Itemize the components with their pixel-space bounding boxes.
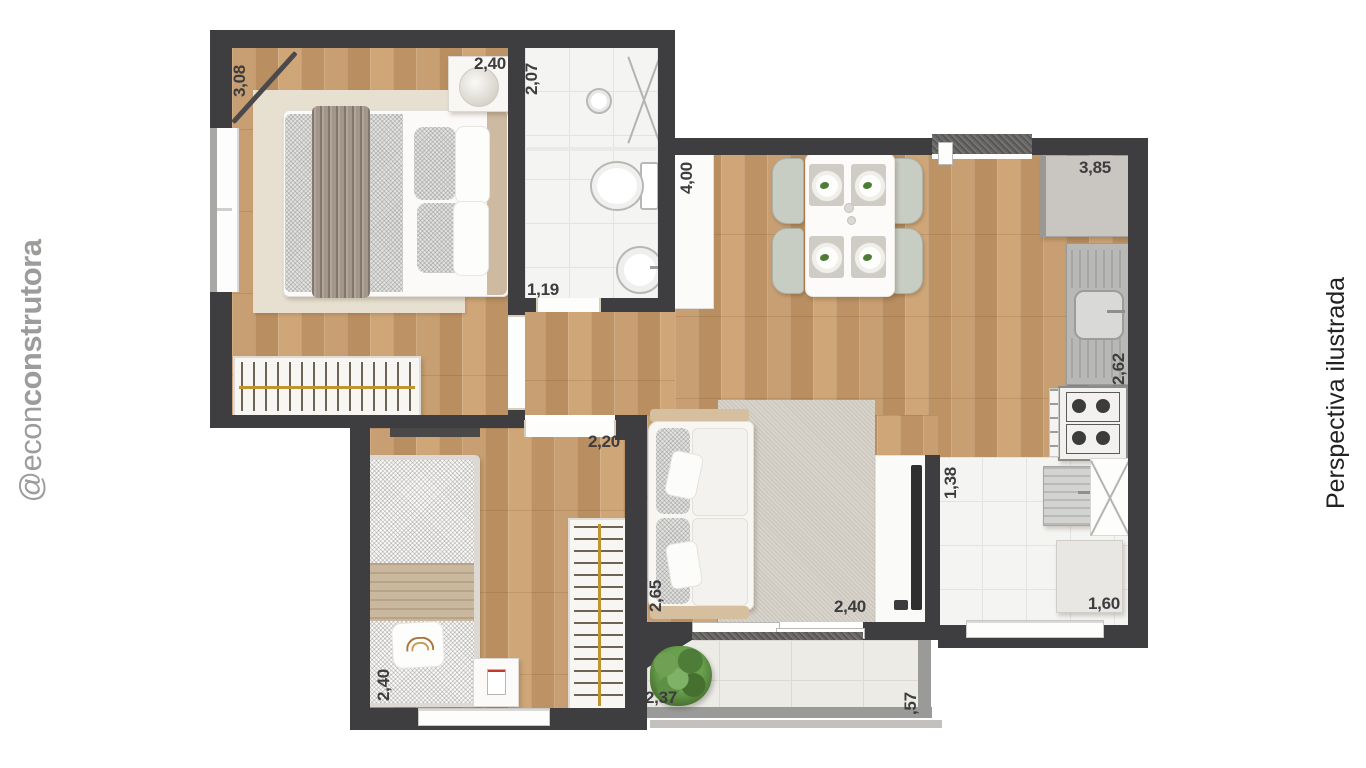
toilet-bowl xyxy=(590,161,644,211)
floor-hallway xyxy=(522,298,675,415)
wall-bedroom2-right xyxy=(625,428,647,730)
entrance-door-leaf xyxy=(938,142,953,165)
media-box xyxy=(894,600,908,610)
balcony-door-sill xyxy=(692,632,863,640)
dining-chair xyxy=(772,158,804,224)
dim-bedroom2-depth: 2,40 xyxy=(375,655,393,701)
dim-bathroom-width: 1,19 xyxy=(527,281,573,299)
watermark-handle-suffix: construtora xyxy=(13,240,48,407)
wall-top xyxy=(210,30,675,48)
wardrobe-rod xyxy=(598,524,601,706)
window-mullion xyxy=(217,208,232,211)
stove-control-strip xyxy=(1049,388,1059,457)
wall-balcony-top-left xyxy=(647,622,692,640)
dim-bathroom-depth: 2,07 xyxy=(523,49,541,95)
dim-living-sofa-depth: 2,65 xyxy=(647,566,665,612)
bed2-blanket xyxy=(368,563,474,621)
table-centerpiece xyxy=(844,203,854,213)
bed-headboard xyxy=(487,110,507,295)
laundry-tank xyxy=(1043,466,1092,526)
tv-screen xyxy=(911,465,922,610)
wall-living-top-left xyxy=(675,138,932,155)
bed-throw-blanket xyxy=(312,106,370,298)
picture-frame-icon xyxy=(487,669,506,695)
dim-bedroom1-width: 2,40 xyxy=(474,55,520,73)
burner-icon xyxy=(1072,399,1086,413)
rainbow-motif-icon xyxy=(411,641,429,651)
drainboard-icon xyxy=(1071,250,1123,288)
dim-balcony-width: 2,37 xyxy=(645,689,691,707)
bed2-pillow xyxy=(391,621,445,670)
bed-pillow-textured xyxy=(414,127,456,200)
dim-balcony-depth: ,57 xyxy=(902,669,920,715)
dim-living-width: 2,40 xyxy=(834,598,880,616)
plate-icon xyxy=(811,242,843,274)
dim-service-width: 1,60 xyxy=(1088,595,1134,613)
table-lamp xyxy=(459,67,499,107)
shower-partition xyxy=(525,147,658,151)
wall-bedroom1-door-jamb xyxy=(508,408,525,428)
floor-plan-illustration: 3,08 2,40 2,07 1,19 4,00 3,85 2,62 2,20 … xyxy=(0,0,1366,768)
door-opening-bathroom xyxy=(536,298,601,312)
wardrobe-bedroom1 xyxy=(233,356,421,417)
dim-bedroom2-width: 2,20 xyxy=(588,433,634,451)
dining-chair xyxy=(891,228,923,294)
bathroom-sink xyxy=(616,246,664,294)
burner-icon xyxy=(1072,431,1086,445)
wall-right xyxy=(1128,138,1148,640)
nightstand-bedroom2 xyxy=(473,658,519,707)
plate-icon xyxy=(854,170,886,202)
watermark-handle: @econconstrutora xyxy=(13,201,51,541)
wall-left-upper xyxy=(210,30,232,130)
bed-pillow-white xyxy=(455,126,490,204)
wall-tv-service xyxy=(925,455,940,625)
dim-living-depth: 4,00 xyxy=(678,148,696,194)
sink-basin-icon xyxy=(1074,290,1124,340)
balcony-railing-bottom xyxy=(647,707,932,718)
dim-bedroom1-depth: 3,08 xyxy=(231,51,249,97)
plate-icon xyxy=(854,242,886,274)
dining-chair xyxy=(772,228,804,294)
wall-bedroom2-left xyxy=(350,415,370,730)
stove xyxy=(1058,386,1128,461)
sofa-seat-cushion xyxy=(692,518,748,606)
plate-icon xyxy=(811,170,843,202)
window-service xyxy=(966,620,1104,638)
shower-glass-icon xyxy=(628,56,660,144)
wardrobe-rod xyxy=(239,386,415,389)
wall-shelf xyxy=(390,428,480,437)
window-bedroom1 xyxy=(210,128,239,292)
wall-bathroom-bottom-right xyxy=(600,298,675,312)
burner-icon xyxy=(1096,431,1110,445)
wardrobe-bedroom2 xyxy=(568,518,629,712)
dim-kitchen-length: 3,85 xyxy=(1079,159,1125,177)
window-bedroom2 xyxy=(418,708,550,726)
table-centerpiece xyxy=(847,216,856,225)
bed-pillow-white xyxy=(453,201,489,276)
watermark-handle-prefix: @econ xyxy=(13,406,48,502)
washer-space xyxy=(1090,458,1131,536)
shower-head-icon xyxy=(586,88,612,114)
burner-icon xyxy=(1096,399,1110,413)
door-opening-bedroom1 xyxy=(508,315,525,410)
dim-kitchen-depth: 2,62 xyxy=(1110,339,1128,385)
kitchen-faucet-icon xyxy=(1107,310,1125,313)
caption-perspective: Perspectiva ilustrada xyxy=(1322,238,1352,548)
dim-service-depth: 1,38 xyxy=(942,453,960,499)
wall-bedroom1-bottom xyxy=(222,415,522,428)
dining-chair xyxy=(891,158,923,224)
wall-balcony-top-right xyxy=(863,622,938,640)
wall-left-lower xyxy=(210,290,232,428)
wall-bathroom-right xyxy=(658,30,675,312)
balcony-railing-outer xyxy=(650,720,942,728)
